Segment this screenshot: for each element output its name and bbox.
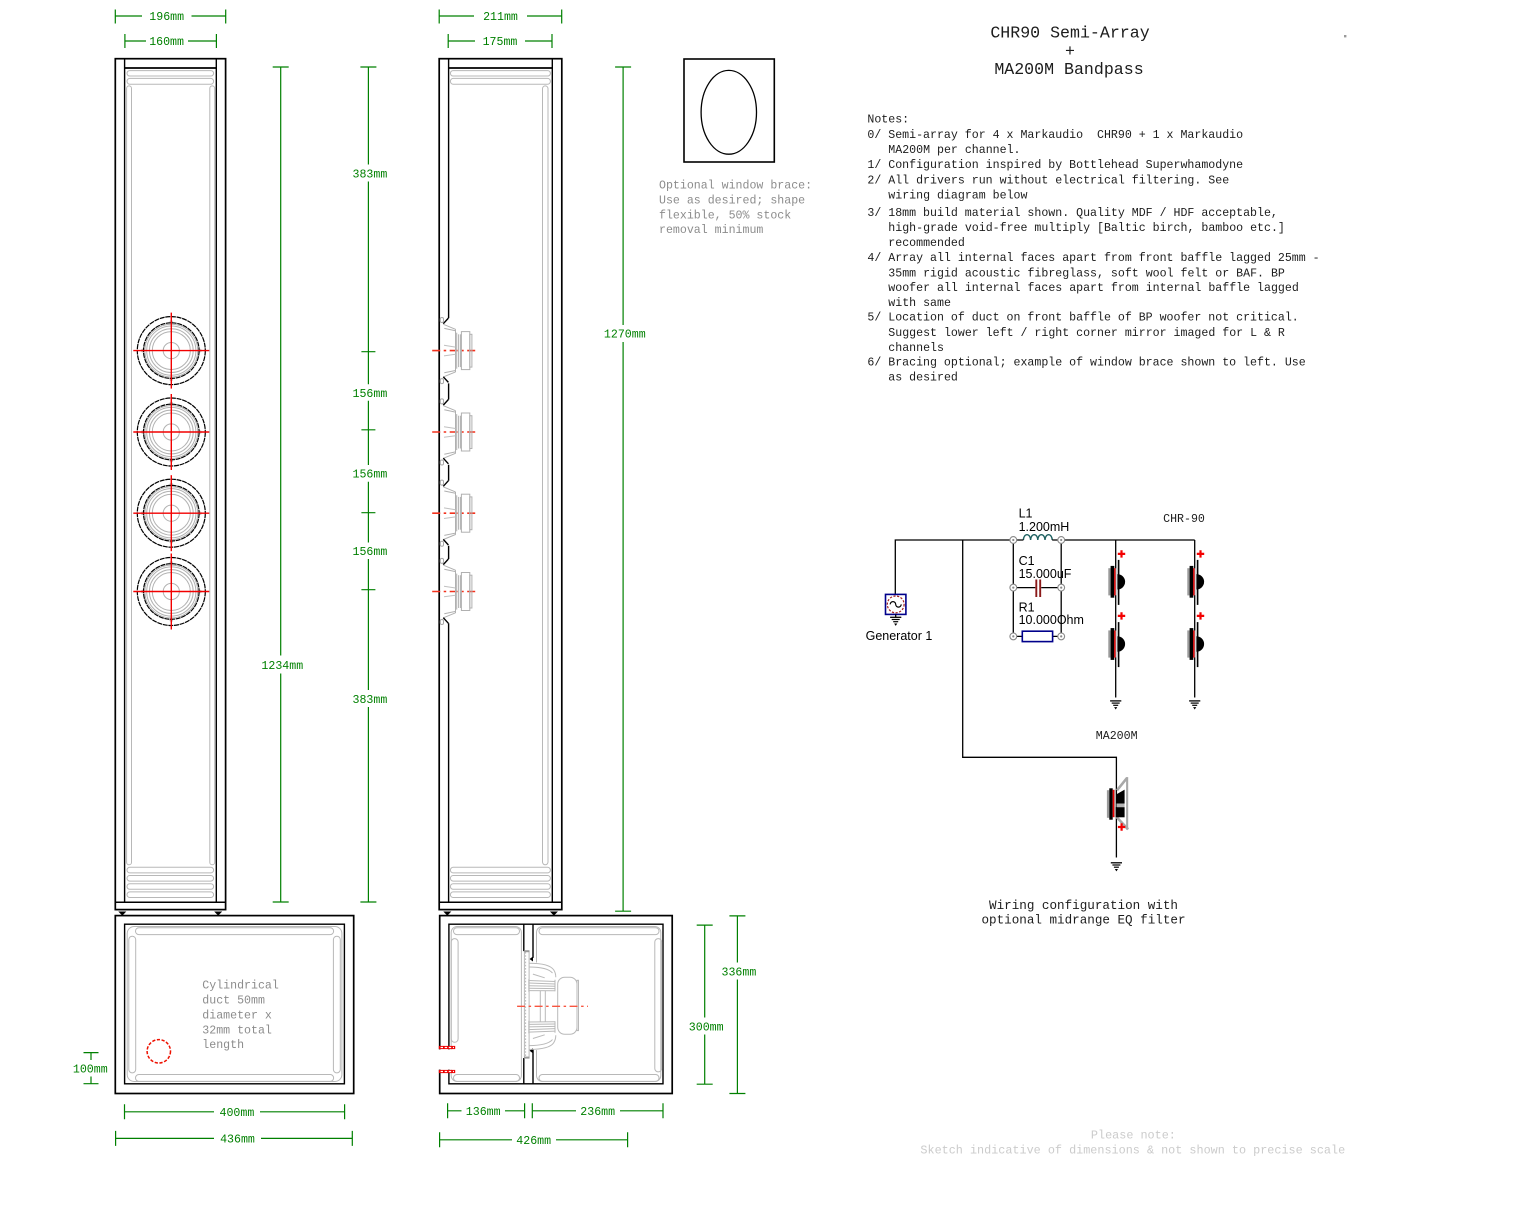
svg-text:15.000uF: 15.000uF: [1019, 567, 1072, 581]
svg-text:136mm: 136mm: [466, 1106, 501, 1119]
svg-text:Wiring configuration with: Wiring configuration with: [989, 899, 1178, 913]
svg-text:Use as desired; shape: Use as desired; shape: [659, 195, 805, 208]
svg-text:removal minimum: removal minimum: [659, 224, 763, 237]
svg-text:5/ Location of duct on front b: 5/ Location of duct on front baffle of B…: [867, 312, 1298, 325]
svg-text:1/ Configuration inspired by B: 1/ Configuration inspired by Bottlehead …: [867, 159, 1243, 172]
svg-text:0/ Semi-array for 4 x Markaudi: 0/ Semi-array for 4 x Markaudio CHR90 + …: [867, 129, 1243, 142]
svg-text:196mm: 196mm: [149, 11, 184, 24]
svg-text:recommended: recommended: [888, 237, 965, 250]
svg-text:wiring diagram below: wiring diagram below: [888, 189, 1027, 202]
svg-text:32mm total: 32mm total: [202, 1024, 272, 1037]
svg-text:6/ Bracing optional; example o: 6/ Bracing optional; example of window b…: [867, 357, 1305, 370]
svg-text:400mm: 400mm: [220, 1107, 255, 1120]
svg-text:optional midrange EQ filter: optional midrange EQ filter: [981, 914, 1185, 928]
svg-text:woofer all internal faces apar: woofer all internal faces apart from int…: [888, 282, 1299, 295]
svg-text:MA200M per channel.: MA200M per channel.: [888, 144, 1020, 157]
svg-text:160mm: 160mm: [149, 36, 184, 49]
svg-text:CHR-90: CHR-90: [1163, 513, 1205, 526]
svg-text:Cylindrical: Cylindrical: [202, 980, 279, 993]
svg-text:Suggest lower left / right cor: Suggest lower left / right corner mirror…: [888, 327, 1285, 340]
svg-text:with same: with same: [888, 297, 951, 310]
svg-text:426mm: 426mm: [516, 1135, 551, 1148]
svg-text:1234mm: 1234mm: [261, 660, 303, 673]
svg-text:436mm: 436mm: [220, 1134, 255, 1147]
svg-text:Sketch indicative of dimension: Sketch indicative of dimensions & not sh…: [920, 1144, 1345, 1158]
svg-text:336mm: 336mm: [722, 966, 757, 979]
svg-text:100mm: 100mm: [73, 1064, 108, 1077]
svg-text:Generator 1: Generator 1: [866, 629, 933, 643]
svg-text:383mm: 383mm: [353, 694, 388, 707]
svg-text:Please note:: Please note:: [1091, 1128, 1176, 1142]
svg-text:300mm: 300mm: [689, 1021, 724, 1034]
svg-text:3/ 18mm build material shown.: 3/ 18mm build material shown. Quality MD…: [867, 207, 1278, 220]
svg-text:236mm: 236mm: [580, 1106, 615, 1119]
svg-text:156mm: 156mm: [353, 388, 388, 401]
svg-text:as desired: as desired: [888, 372, 958, 385]
svg-text:156mm: 156mm: [353, 469, 388, 482]
svg-text:211mm: 211mm: [483, 11, 518, 24]
svg-text:175mm: 175mm: [483, 36, 518, 49]
svg-text:MA200M Bandpass: MA200M Bandpass: [994, 60, 1143, 79]
svg-text:C1: C1: [1019, 554, 1035, 568]
svg-text:Notes:: Notes:: [867, 114, 909, 127]
svg-text:flexible, 50% stock: flexible, 50% stock: [659, 209, 791, 222]
svg-text:channels: channels: [888, 342, 944, 355]
svg-text:1270mm: 1270mm: [604, 329, 646, 342]
svg-text:+: +: [1065, 42, 1075, 61]
svg-text:2/ All drivers run without ele: 2/ All drivers run without electrical fi…: [867, 174, 1229, 187]
svg-text:MA200M: MA200M: [1096, 730, 1138, 743]
svg-text:35mm rigid acoustic fibreglass: 35mm rigid acoustic fibreglass, soft woo…: [888, 267, 1285, 280]
svg-text:length: length: [202, 1039, 244, 1052]
svg-text:383mm: 383mm: [353, 168, 388, 181]
svg-text:CHR90 Semi-Array: CHR90 Semi-Array: [990, 24, 1149, 43]
svg-text:duct 50mm: duct 50mm: [202, 995, 265, 1008]
svg-text:high-grade void-free multiply: high-grade void-free multiply [Baltic bi…: [888, 222, 1285, 235]
svg-text:4/ Array all internal faces ap: 4/ Array all internal faces apart from f…: [867, 252, 1319, 265]
svg-text:1.200mH: 1.200mH: [1019, 520, 1070, 534]
svg-text:Optional window brace:: Optional window brace:: [659, 180, 812, 193]
svg-text:L1: L1: [1019, 507, 1033, 521]
svg-text:10.000Ohm: 10.000Ohm: [1019, 613, 1084, 627]
svg-text:diameter x: diameter x: [202, 1009, 272, 1022]
svg-text:156mm: 156mm: [353, 546, 388, 559]
